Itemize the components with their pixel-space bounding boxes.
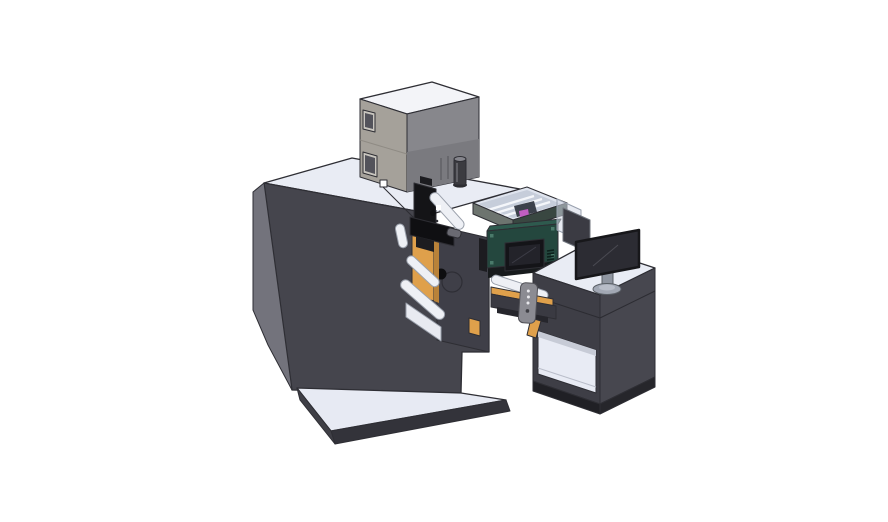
- hand-controller: [518, 282, 538, 323]
- box-label-square: [380, 180, 387, 187]
- controller-vent: [547, 253, 554, 254]
- printhead-knob: [430, 210, 436, 216]
- controller-screw: [551, 227, 555, 231]
- cylinder-body: [454, 159, 466, 185]
- monitor-base-inner: [599, 285, 615, 291]
- controller-screw: [490, 234, 494, 238]
- box-window-glass: [365, 155, 375, 174]
- unwind-orange-shade: [434, 239, 439, 303]
- controller-vent: [547, 256, 554, 257]
- printhead-knob: [418, 197, 425, 204]
- base-platform: [297, 388, 510, 444]
- filter-cylinder: [453, 157, 467, 188]
- controller-left-bracket: [479, 238, 487, 272]
- mech-orange-wedge: [469, 318, 480, 336]
- controller-vent: [547, 250, 554, 251]
- cad-render-canvas: [0, 0, 888, 522]
- controller-vent: [547, 259, 554, 260]
- cylinder-top: [454, 157, 466, 162]
- printhead-indicator: [436, 205, 441, 210]
- controller-screw: [490, 261, 494, 265]
- box-window-glass: [365, 113, 373, 129]
